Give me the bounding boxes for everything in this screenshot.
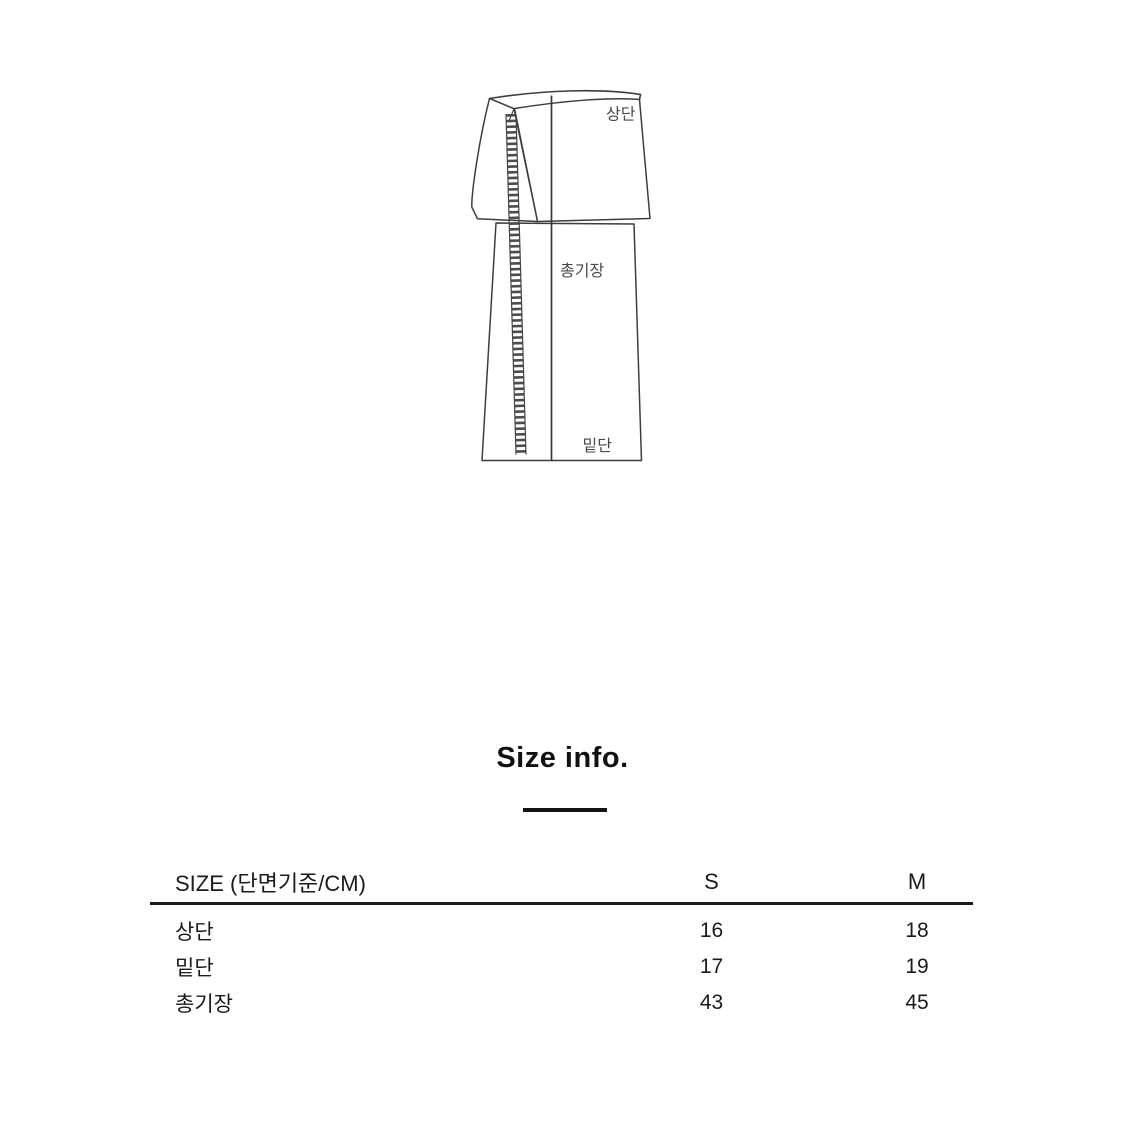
size-table-header-row: SIZE (단면기준/CM) S M	[150, 862, 973, 905]
label-total-length: 총기장	[560, 262, 604, 280]
size-table-header-label: SIZE (단면기준/CM)	[150, 866, 562, 898]
size-table: SIZE (단면기준/CM) S M 상단 16 18 밑단 17 19 총기장…	[150, 862, 973, 1021]
size-info-title: Size info.	[0, 742, 1125, 775]
garment-diagram: 상단 총기장 밑단	[440, 82, 670, 472]
row-label: 상단	[150, 916, 562, 946]
label-top-width: 상단	[606, 106, 636, 124]
size-table-header-col-m: M	[861, 869, 973, 895]
size-table-header-col-s: S	[562, 869, 861, 895]
row-value-m: 19	[861, 955, 973, 979]
skirt-under-panel	[482, 223, 642, 461]
table-row: 밑단 17 19	[150, 949, 973, 985]
row-value-m: 45	[861, 991, 973, 1015]
title-underline-divider	[523, 808, 607, 812]
garment-diagram-svg: 상단 총기장 밑단	[440, 82, 670, 472]
row-value-s: 43	[562, 991, 861, 1015]
table-row: 상단 16 18	[150, 913, 973, 949]
row-value-s: 17	[562, 955, 861, 979]
row-value-m: 18	[861, 919, 973, 943]
row-value-s: 16	[562, 919, 861, 943]
size-info-page: 상단 총기장 밑단 Size info. SIZE (단면기준/CM) S M …	[0, 0, 1125, 1125]
table-row: 총기장 43 45	[150, 985, 973, 1021]
row-label: 밑단	[150, 952, 562, 982]
size-table-body: 상단 16 18 밑단 17 19 총기장 43 45	[150, 905, 973, 1021]
row-label: 총기장	[150, 988, 562, 1018]
label-hem-width: 밑단	[583, 437, 613, 455]
